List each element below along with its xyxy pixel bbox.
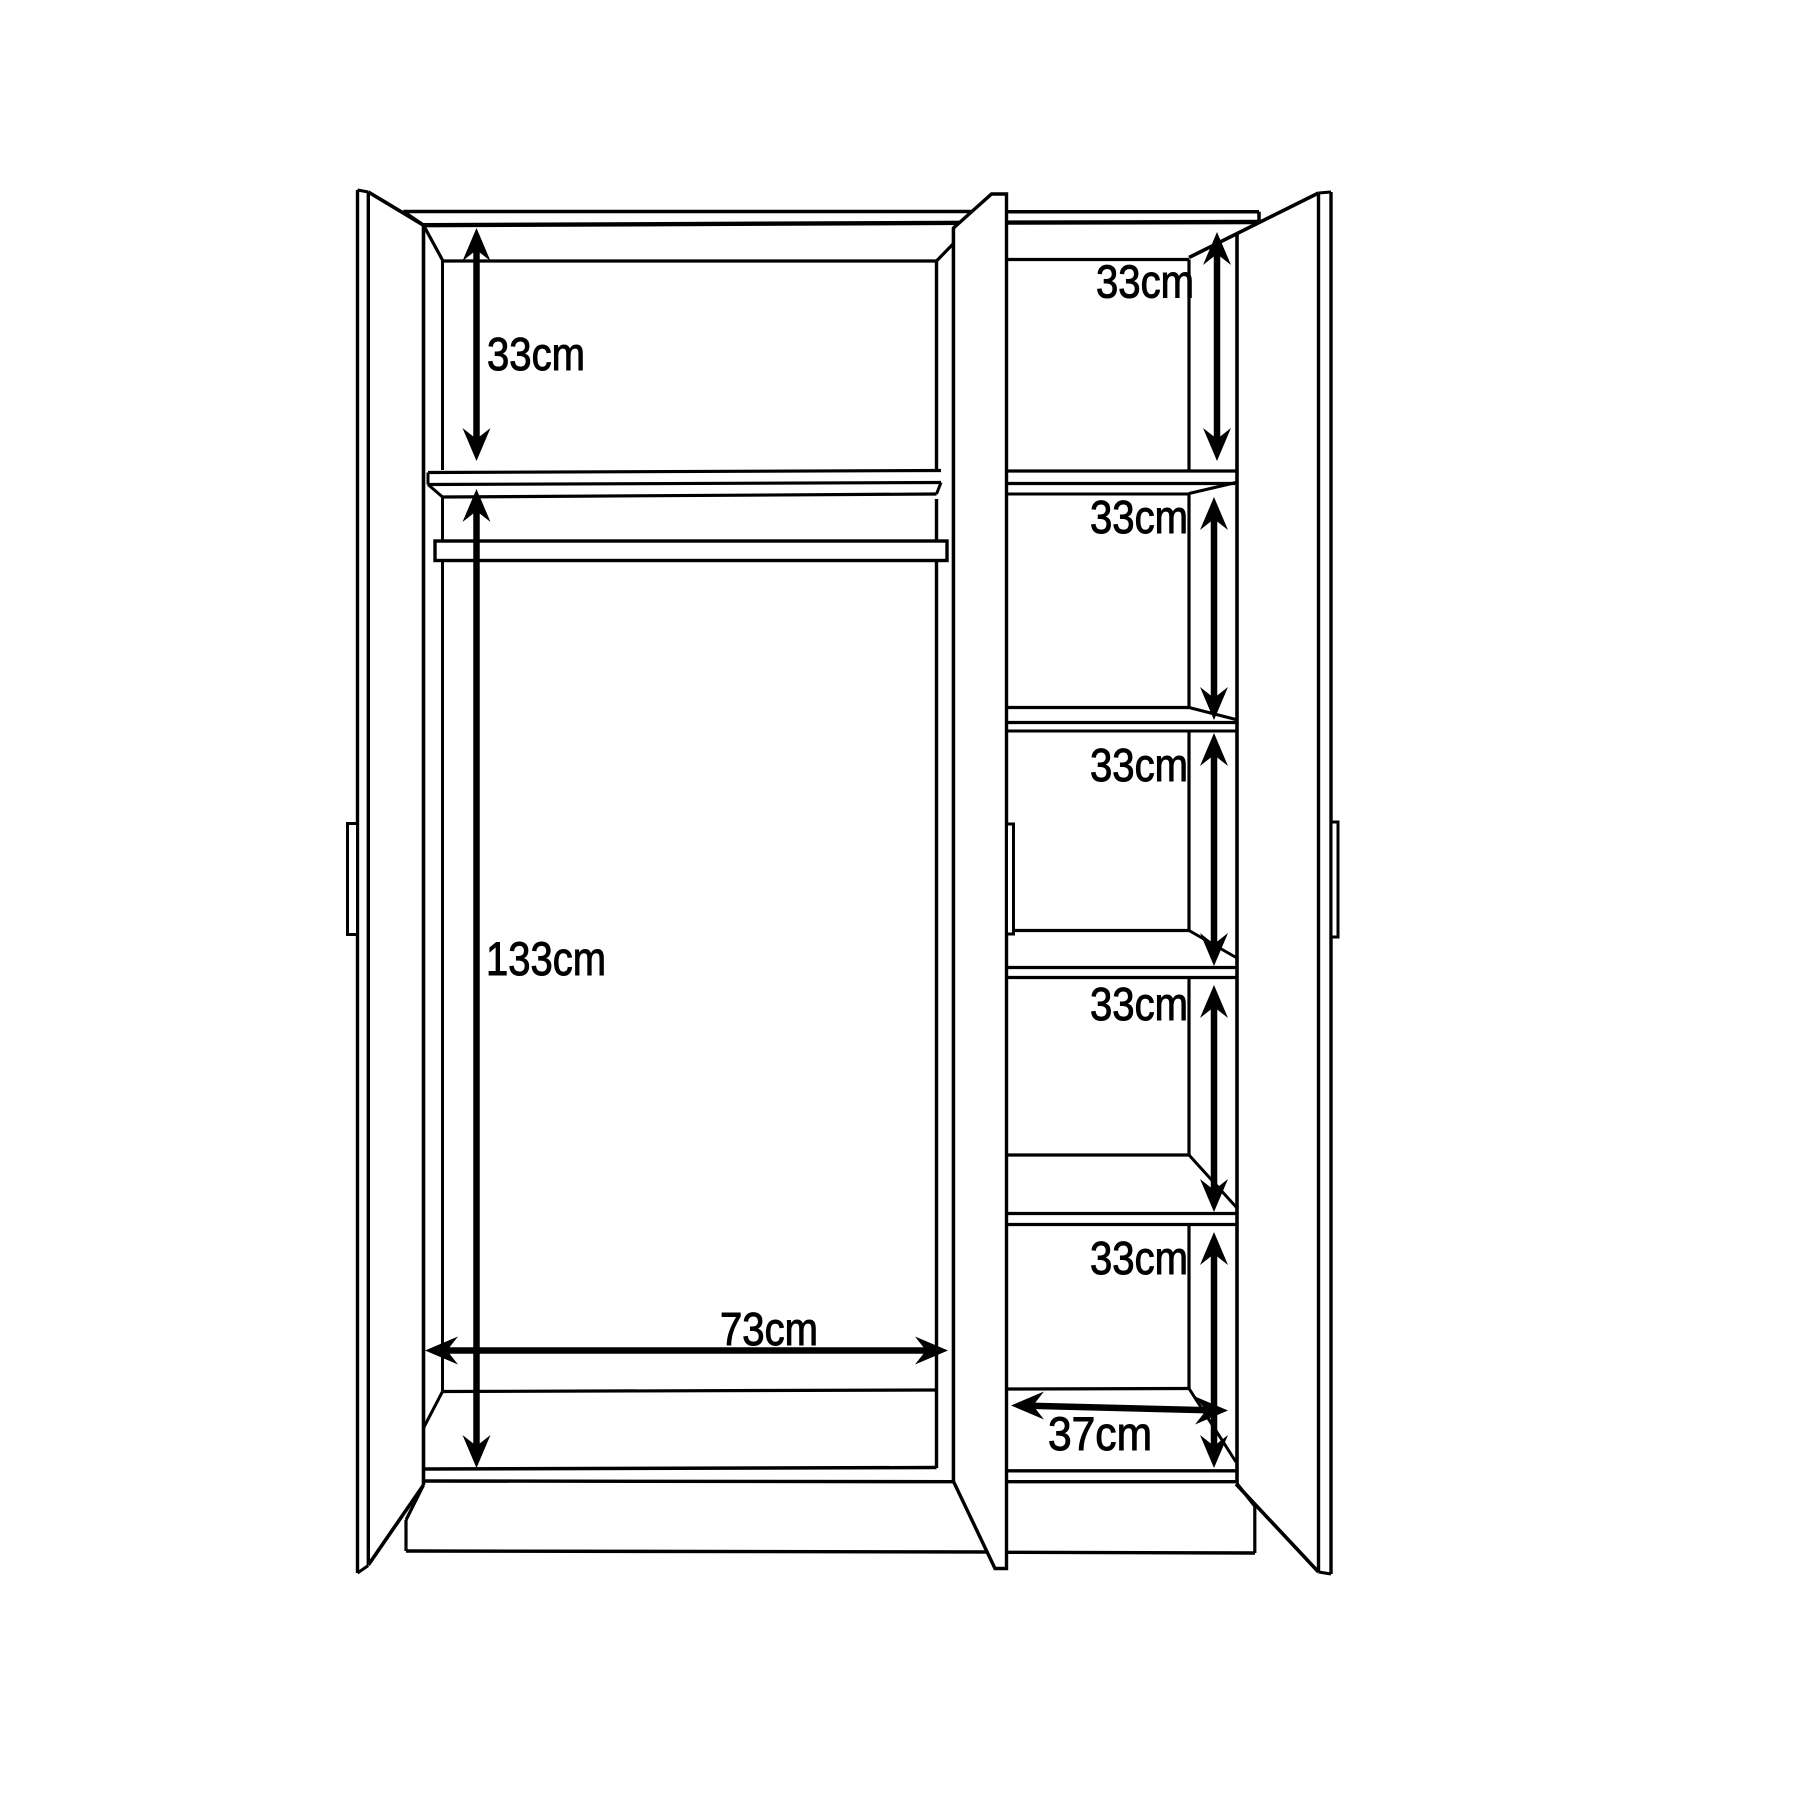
svg-text:73cm: 73cm <box>720 1303 818 1355</box>
svg-text:33cm: 33cm <box>1096 256 1194 308</box>
svg-text:33cm: 33cm <box>1090 739 1188 791</box>
svg-text:33cm: 33cm <box>1090 491 1188 543</box>
svg-text:33cm: 33cm <box>1090 1232 1188 1284</box>
svg-text:37cm: 37cm <box>1048 1407 1152 1460</box>
svg-text:33cm: 33cm <box>1090 978 1188 1030</box>
svg-text:33cm: 33cm <box>487 328 585 380</box>
svg-text:133cm: 133cm <box>486 932 606 985</box>
